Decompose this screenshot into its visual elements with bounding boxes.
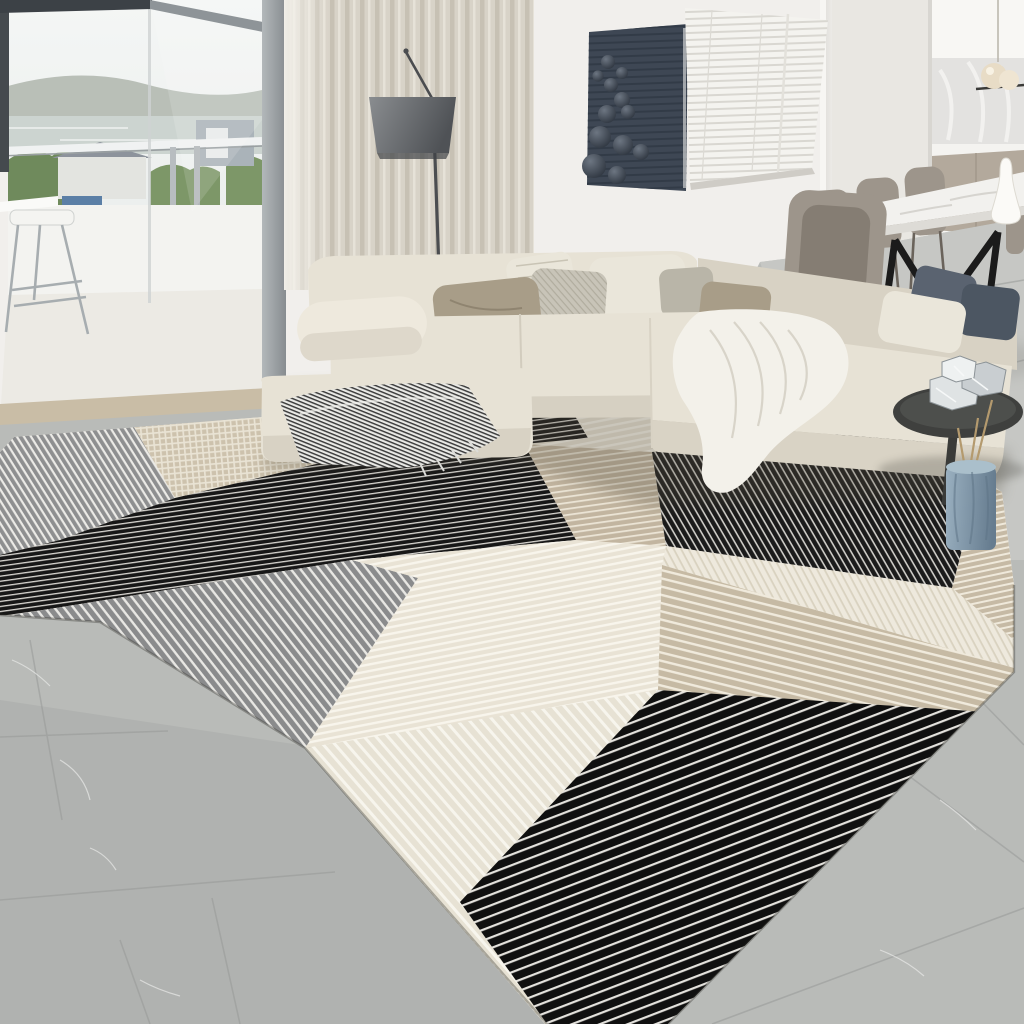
- blinds-window: [685, 8, 828, 190]
- balcony-window: [0, 0, 286, 441]
- scene-svg: [0, 0, 1024, 1024]
- pendant-globe-2: [999, 70, 1019, 90]
- upper-cabinets: [932, 0, 1024, 60]
- stool-seat: [10, 210, 74, 225]
- glass-mullion: [148, 3, 151, 303]
- window-frame-right: [262, 0, 286, 420]
- lamp-shade: [369, 97, 456, 153]
- pendant-highlight: [986, 67, 994, 75]
- art-panel-edge-light: [683, 28, 686, 188]
- blue-vase-mouth: [946, 460, 996, 474]
- living-room-photo: [0, 0, 1024, 1024]
- house-wall: [58, 157, 146, 199]
- lamp-shade-rim: [377, 153, 449, 159]
- frame-left-dark: [0, 0, 9, 172]
- curtain-sheer-edge: [284, 0, 330, 290]
- pillow-slate-dark: [957, 283, 1021, 342]
- wall-art: [582, 24, 688, 191]
